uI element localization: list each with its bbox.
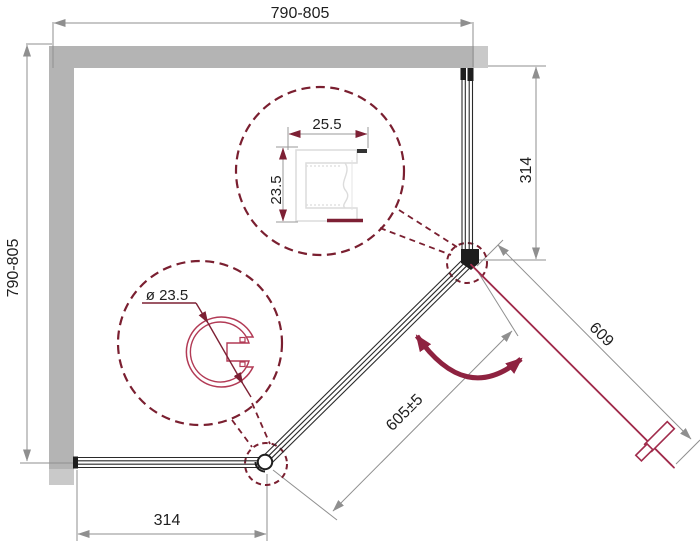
hinge-pivot-circle (258, 455, 272, 469)
fixed-panel-right (461, 68, 474, 258)
panel-left-bracket (73, 457, 78, 469)
top-wall (49, 46, 488, 68)
label-profile-height: 23.5 (268, 175, 285, 204)
label-profile-width: 25.5 (312, 116, 341, 133)
left-wall-end-cap (49, 469, 74, 485)
technical-drawing-canvas: 790-805 790-805 314 314 609 605±5 25.5 2… (0, 0, 700, 544)
dimension-opening-605 (273, 272, 518, 520)
label-left-depth: 790-805 (5, 239, 22, 298)
door-swing-arrow (417, 336, 521, 378)
wall-profile-detail (276, 127, 368, 222)
label-hinge-diameter: ø 23.5 (146, 287, 189, 304)
dimension-labels: 790-805 790-805 314 314 609 605±5 25.5 2… (5, 5, 617, 529)
detail-circle-wall-profile (236, 87, 404, 255)
label-right-panel: 314 (518, 157, 535, 184)
panel-top-bracket (468, 68, 474, 81)
corner-joint-bracket (461, 249, 479, 270)
dimension-bottom (77, 470, 267, 541)
door-handle (635, 422, 675, 462)
dimension-right (477, 66, 546, 260)
detail-callouts (118, 87, 487, 485)
hinge-profile-detail (142, 303, 253, 397)
shower-layout-svg: 790-805 790-805 314 314 609 605±5 25.5 2… (0, 0, 700, 544)
panel-top-bracket (461, 68, 467, 80)
walls (49, 46, 488, 485)
pivot-door (471, 265, 674, 468)
top-wall-end-cap (474, 46, 488, 68)
hinge-profile-inner (190, 322, 249, 382)
label-bottom-panel: 314 (154, 512, 181, 529)
callout-tails (232, 210, 457, 447)
label-top-width: 790-805 (271, 5, 330, 22)
label-opening-width: 605±5 (383, 391, 426, 434)
dimension-lines (20, 22, 700, 541)
wall-profile-gasket (343, 163, 347, 208)
profile-dark-tick (357, 149, 367, 153)
wall-profile-outline (296, 150, 357, 221)
label-door-width: 609 (586, 319, 617, 350)
fixed-panel-bottom (73, 457, 259, 469)
left-wall (49, 46, 74, 485)
